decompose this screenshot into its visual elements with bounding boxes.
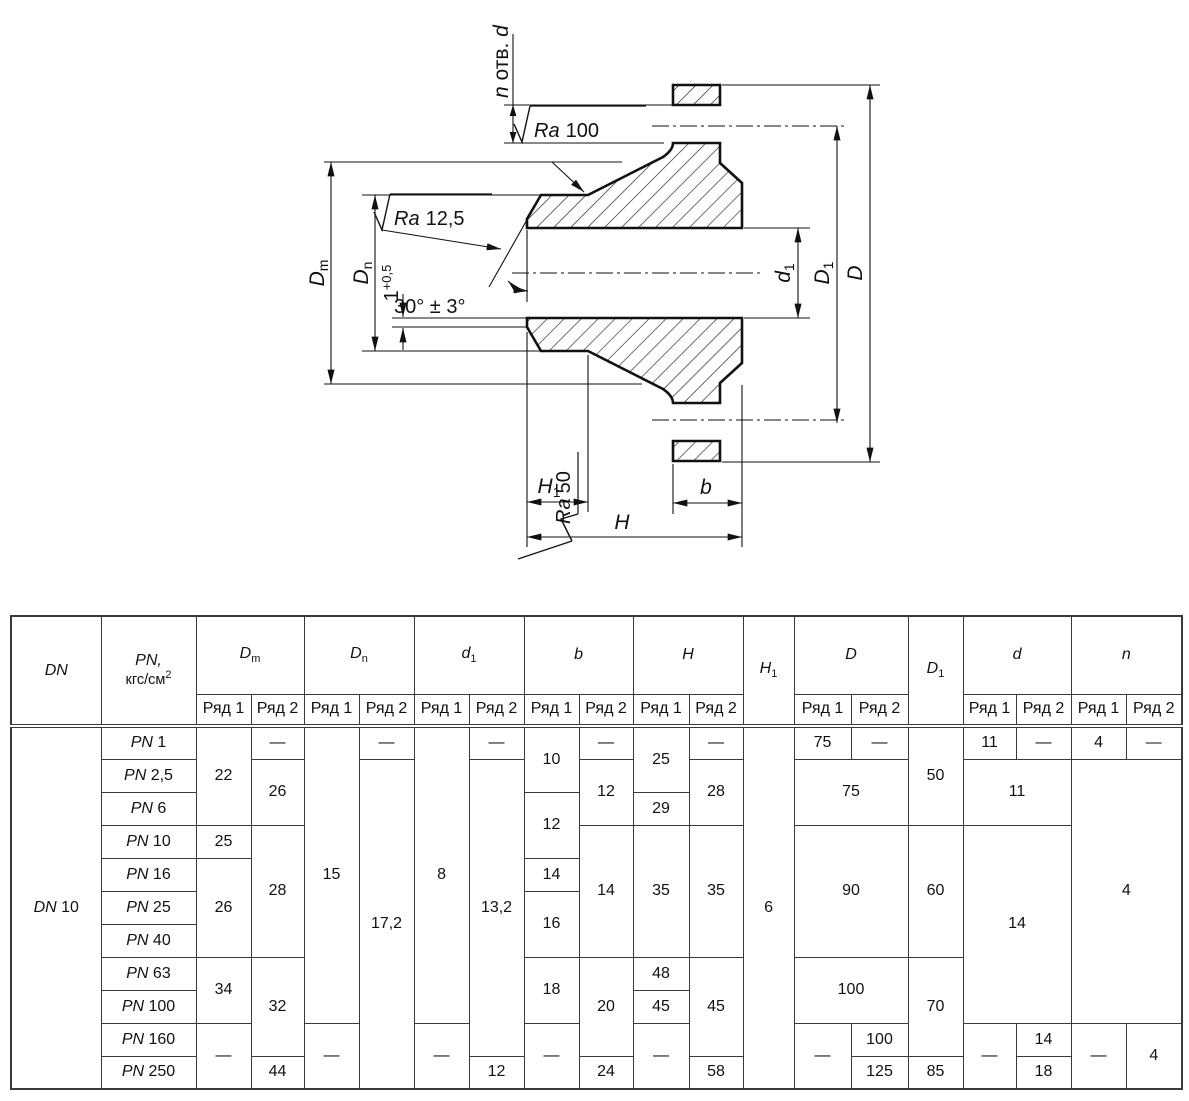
col-subheader-b-ryad1: Ряд 1 [524, 694, 579, 726]
cell-d1-col: 60 [908, 825, 963, 957]
label-angle-note: 30° ± 3° [394, 296, 465, 318]
cell-d-col-r2: 100 [851, 1023, 908, 1056]
cell-n: 4 [1071, 759, 1182, 1023]
col-header-n: n [1071, 616, 1182, 694]
cell-pn: PN 25 [101, 891, 196, 924]
cell-dm-r1: 26 [196, 858, 251, 957]
cell-dn-r2: 17,2 [359, 759, 414, 1089]
cell-h-r1: 48 [633, 957, 689, 990]
col-header-b: b [524, 616, 633, 694]
cell-d1-col: 50 [908, 726, 963, 825]
cell-pn: PN 40 [101, 924, 196, 957]
col-header-d: d [963, 616, 1071, 694]
cell-d-col-r2: — [851, 726, 908, 759]
label-dim-H: H [614, 511, 630, 534]
cell-h-r2: 35 [689, 825, 743, 957]
cell-b-r2: 12 [579, 759, 633, 825]
col-header-Dn: Dn [304, 616, 414, 694]
cell-d1-r2: 13,2 [469, 759, 524, 1056]
cell-pn: PN 63 [101, 957, 196, 990]
cell-dn-r1: 15 [304, 726, 359, 1023]
cell-b-r1: 14 [524, 858, 579, 891]
label-dim-D1: D1 [811, 261, 836, 284]
roughness-check-icon [514, 106, 530, 142]
col-header-D1: D1 [908, 616, 963, 726]
cell-d-col-r2: 125 [851, 1056, 908, 1089]
cell-d1-r2: 12 [469, 1056, 524, 1089]
roughness-ra125: Ra12,5 [374, 194, 492, 230]
cell-d1-col: 85 [908, 1056, 963, 1089]
col-header-pn: PN,кгс/см2 [101, 616, 196, 726]
col-subheader-H-ryad1: Ряд 1 [633, 694, 689, 726]
cell-d-col-r1: 75 [794, 726, 851, 759]
cell-pn: PN 100 [101, 990, 196, 1023]
cell-b-r2: 20 [579, 957, 633, 1056]
cell-h-r1: 25 [633, 726, 689, 792]
svg-text:Ra12,5: Ra12,5 [394, 208, 465, 230]
col-subheader-d1-ryad1: Ряд 1 [414, 694, 469, 726]
cell-b-r1: 12 [524, 792, 579, 858]
cell-dm-r2: 28 [251, 825, 304, 957]
col-subheader-D-ryad2: Ряд 2 [851, 694, 908, 726]
cell-dm-r1: 22 [196, 726, 251, 825]
flange-rim-top [673, 85, 720, 105]
cell-h-r1: 29 [633, 792, 689, 825]
cell-pn: PN 2,5 [101, 759, 196, 792]
cell-h-r1: 45 [633, 990, 689, 1023]
cell-b-r1: 10 [524, 726, 579, 792]
flange-technical-drawing: Ra100 Ra12,5 Ra50 n отв. d Dm Dn 1+0,5 3… [0, 0, 1189, 611]
label-dim-D: D [844, 265, 867, 280]
col-subheader-Dn-ryad1: Ряд 1 [304, 694, 359, 726]
cell-pn: PN 1 [101, 726, 196, 759]
cell-dm-r2: 44 [251, 1056, 304, 1089]
table-body: DN 10PN 122—15—8—10—25—675—5011—4—PN 2,5… [11, 726, 1182, 1089]
cell-dn-r1: — [304, 1023, 359, 1089]
col-subheader-n-ryad1: Ряд 1 [1071, 694, 1126, 726]
cell-d-col: 75 [794, 759, 908, 825]
table-row-pn-10: PN 102528143535906014 [11, 825, 1182, 858]
label-bolt-holes: n отв. d [490, 24, 513, 98]
cell-d1-r1: 8 [414, 726, 469, 1023]
ra125-leader-arrow [382, 230, 501, 249]
col-header-Dm: Dm [196, 616, 304, 694]
cell-d-small-r1: — [963, 1023, 1016, 1089]
col-subheader-d-ryad2: Ряд 2 [1016, 694, 1071, 726]
cell-b-r2: — [579, 726, 633, 759]
angle-arc [508, 281, 528, 291]
cell-d-small-r2: 18 [1016, 1056, 1071, 1089]
cell-dn: DN 10 [11, 726, 101, 1089]
flange-section-svg: Ra100 Ra12,5 Ra50 n отв. d Dm Dn 1+0,5 3… [0, 0, 1189, 606]
cell-h-r1: — [633, 1023, 689, 1089]
flange-rim-bottom [673, 441, 720, 461]
cell-h-r1: 35 [633, 825, 689, 957]
label-dim-b: b [700, 476, 712, 499]
col-subheader-Dm-ryad2: Ряд 2 [251, 694, 304, 726]
table-row-pn-1: DN 10PN 122—15—8—10—25—675—5011—4— [11, 726, 1182, 759]
cell-d-col: 90 [794, 825, 908, 957]
cell-b-r1: 16 [524, 891, 579, 957]
roughness-ra100: Ra100 [514, 106, 646, 142]
roughness-check-icon [374, 194, 390, 230]
cell-h1-col: 6 [743, 726, 794, 1089]
cell-d-small-r1: 11 [963, 726, 1016, 759]
label-dim-Dm: Dm [306, 260, 331, 287]
cell-d1-r1: — [414, 1023, 469, 1089]
cell-h-r2: 45 [689, 957, 743, 1056]
cell-d-col: 100 [794, 957, 908, 1023]
cell-pn: PN 250 [101, 1056, 196, 1089]
col-subheader-d-ryad1: Ряд 1 [963, 694, 1016, 726]
col-subheader-Dn-ryad2: Ряд 2 [359, 694, 414, 726]
cell-d-small: 14 [963, 825, 1071, 1023]
cell-d-col-r1: — [794, 1023, 851, 1089]
taper-leader-arrow [552, 162, 584, 192]
cell-pn: PN 160 [101, 1023, 196, 1056]
cell-d-small-r2: 14 [1016, 1023, 1071, 1056]
col-subheader-b-ryad2: Ряд 2 [579, 694, 633, 726]
cell-b-r2: 24 [579, 1056, 633, 1089]
arrow-up-icon [510, 105, 517, 116]
table-head: DNPN,кгс/см2DmDnd1bHH1DD1dnРяд 1Ряд 2Ряд… [11, 616, 1182, 726]
col-header-d1: d1 [414, 616, 524, 694]
cell-dm-r1: 34 [196, 957, 251, 1023]
cell-n-r2: — [1126, 726, 1182, 759]
cell-b-r2: 14 [579, 825, 633, 957]
col-header-H: H [633, 616, 743, 694]
col-subheader-Dm-ryad1: Ряд 1 [196, 694, 251, 726]
header-row-1: DNPN,кгс/см2DmDnd1bHH1DD1dn [11, 616, 1182, 694]
flange-section-upper [527, 143, 742, 228]
cell-dm-r2: 32 [251, 957, 304, 1056]
label-dim-d1: d1 [772, 263, 797, 283]
svg-text:Ra100: Ra100 [534, 120, 599, 142]
cell-d1-col: 70 [908, 957, 963, 1056]
cell-dm-r1: 25 [196, 825, 251, 858]
cell-pn: PN 6 [101, 792, 196, 825]
cell-b-r1: 18 [524, 957, 579, 1023]
cell-b-r1: — [524, 1023, 579, 1089]
arrow-down-icon [510, 132, 517, 143]
cell-pn: PN 10 [101, 825, 196, 858]
col-subheader-H-ryad2: Ряд 2 [689, 694, 743, 726]
cell-n-r2: 4 [1126, 1023, 1182, 1089]
col-subheader-d1-ryad2: Ряд 2 [469, 694, 524, 726]
flange-section-lower [527, 318, 742, 403]
cell-n-r1: — [1071, 1023, 1126, 1089]
col-subheader-D-ryad1: Ряд 1 [794, 694, 851, 726]
cell-d-small-r2: — [1016, 726, 1071, 759]
cell-h-r2: 28 [689, 759, 743, 825]
cell-dn-r2: — [359, 726, 414, 759]
cell-h-r2: — [689, 726, 743, 759]
col-header-H1: H1 [743, 616, 794, 726]
col-subheader-n-ryad2: Ряд 2 [1126, 694, 1182, 726]
col-header-dn: DN [11, 616, 101, 726]
col-header-D: D [794, 616, 908, 694]
cell-h-r2: 58 [689, 1056, 743, 1089]
cell-n-r1: 4 [1071, 726, 1126, 759]
label-dim-Dn: Dn [350, 262, 375, 285]
cell-pn: PN 16 [101, 858, 196, 891]
cell-d1-r2: — [469, 726, 524, 759]
cell-d-small: 11 [963, 759, 1071, 825]
cell-dm-r1: — [196, 1023, 251, 1089]
table-row-pn-2,5: PN 2,52617,213,2122875114 [11, 759, 1182, 792]
cell-dm-r2: — [251, 726, 304, 759]
flange-dimension-table: DNPN,кгс/см2DmDnd1bHH1DD1dnРяд 1Ряд 2Ряд… [10, 615, 1183, 1090]
cell-dm-r2: 26 [251, 759, 304, 825]
